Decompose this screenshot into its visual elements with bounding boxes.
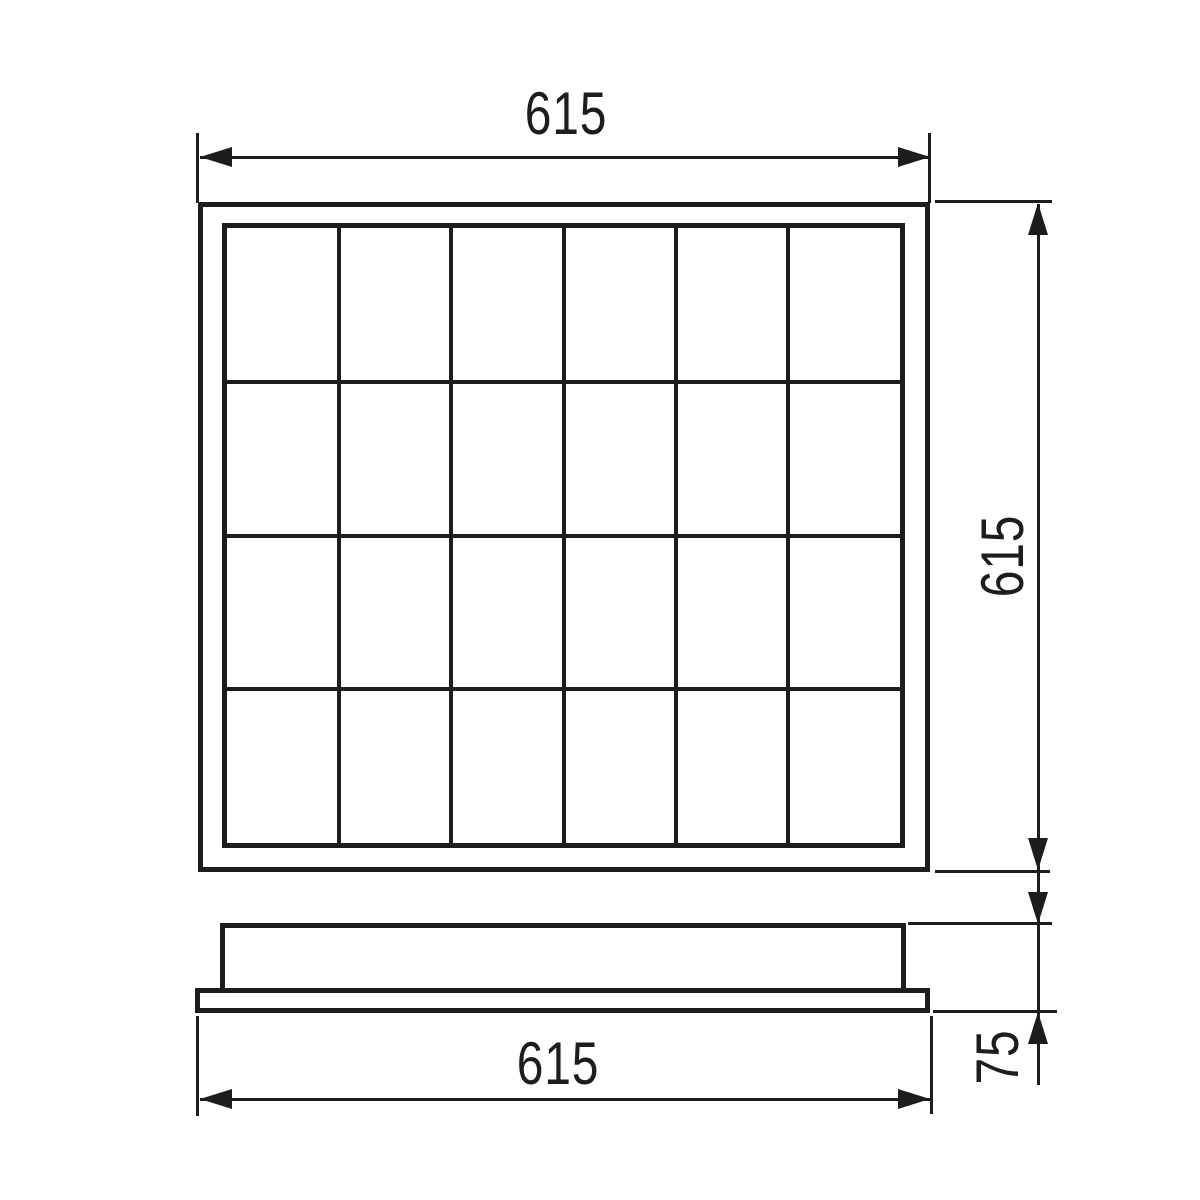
bottom-width-extension-line-right bbox=[930, 1016, 933, 1114]
profile-height-dimension-label: 75 bbox=[968, 977, 1028, 1137]
right-height-dimension-line bbox=[1037, 204, 1040, 870]
right-height-extension-line-bottom bbox=[935, 870, 1050, 873]
technical-drawing: 615 615 75 615 bbox=[0, 0, 1200, 1200]
arrowhead-left-icon bbox=[200, 1089, 232, 1109]
top-width-extension-line-left bbox=[196, 133, 199, 203]
front-view-louvre-grid bbox=[222, 223, 905, 848]
grid-line-horizontal bbox=[227, 534, 900, 538]
arrowhead-right-icon bbox=[898, 1089, 930, 1109]
arrowhead-left-icon bbox=[200, 147, 232, 167]
bottom-width-extension-line-left bbox=[196, 1016, 199, 1116]
side-view-body bbox=[220, 923, 906, 991]
arrowhead-down-icon bbox=[1028, 892, 1048, 924]
side-view-flange bbox=[195, 988, 930, 1013]
arrowhead-up-icon bbox=[1028, 1012, 1048, 1044]
right-height-dimension-label: 615 bbox=[973, 476, 1033, 636]
grid-line-horizontal bbox=[227, 687, 900, 691]
top-width-extension-line-right bbox=[928, 133, 931, 203]
bottom-width-dimension-line bbox=[200, 1098, 930, 1101]
arrowhead-right-icon bbox=[898, 147, 930, 167]
arrowhead-up-icon bbox=[1028, 203, 1048, 235]
top-width-dimension-line bbox=[200, 156, 930, 159]
arrowhead-down-icon bbox=[1028, 838, 1048, 870]
grid-line-horizontal bbox=[227, 380, 900, 384]
top-width-dimension-label: 615 bbox=[486, 84, 646, 144]
bottom-width-dimension-label: 615 bbox=[478, 1034, 638, 1094]
